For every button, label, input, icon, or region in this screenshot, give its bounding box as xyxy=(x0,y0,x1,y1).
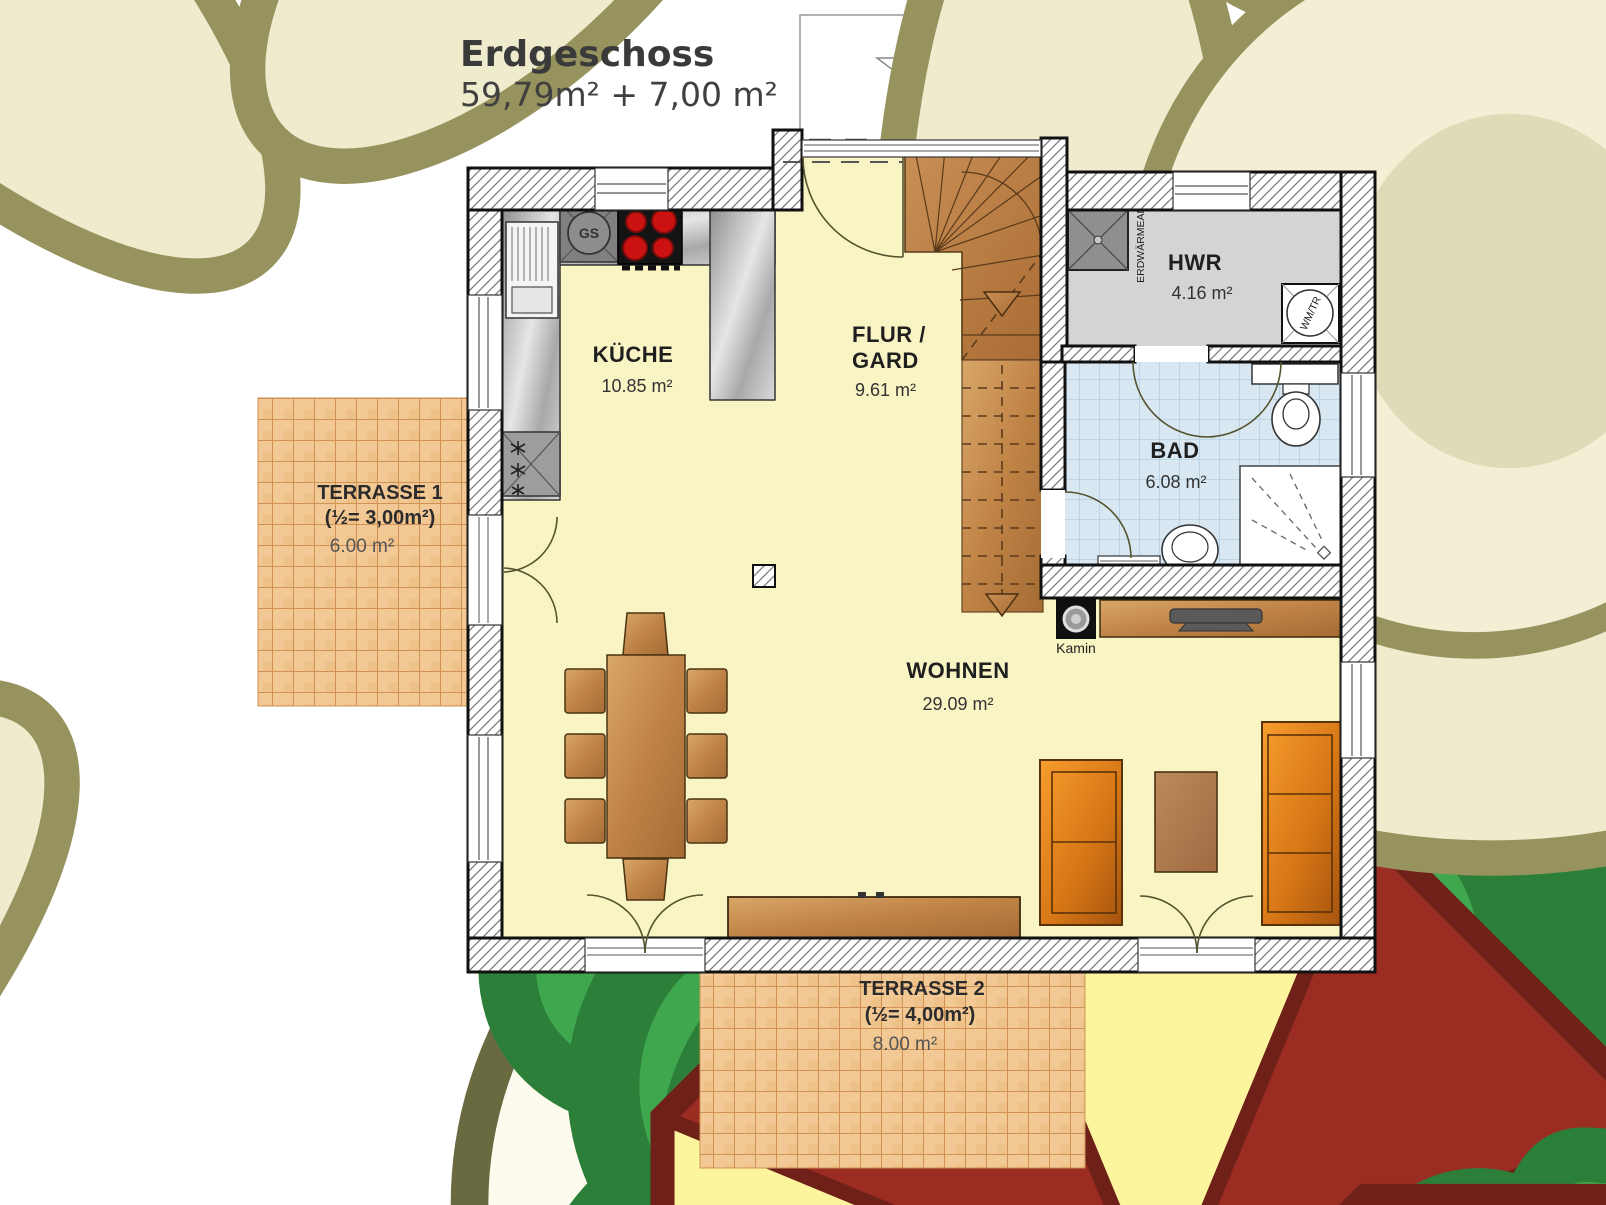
hwr-label: HWR xyxy=(1168,250,1222,275)
wall-entry-jog xyxy=(773,130,802,210)
dining-chair xyxy=(687,799,727,843)
window xyxy=(1341,662,1375,758)
terrace-1-halfnote: (½= 3,00m²) xyxy=(325,507,436,529)
bad-label: BAD xyxy=(1150,438,1199,463)
dishwasher-label: GS xyxy=(579,225,599,241)
page-title: Erdgeschoss xyxy=(460,34,714,75)
bad-area: 6.08 m² xyxy=(1145,472,1206,492)
tv-icon xyxy=(1170,609,1262,623)
wall-hwr-bad-a xyxy=(1062,346,1135,362)
dining-chair xyxy=(565,799,605,843)
burner-icon xyxy=(626,212,646,232)
wohnen-area: 29.09 m² xyxy=(922,694,993,714)
wall-bad-wohnen xyxy=(1041,565,1341,598)
sideboard xyxy=(728,892,1020,938)
geothermal-unit xyxy=(1068,210,1128,270)
hwr-area: 4.16 m² xyxy=(1171,283,1232,303)
terrace-1-area: 6.00 m² xyxy=(330,536,394,557)
burner-icon xyxy=(652,209,676,233)
terrace-2-halfnote: (½= 4,00m²) xyxy=(865,1004,976,1026)
dining-chair xyxy=(623,859,668,900)
column xyxy=(753,565,775,587)
wall-stair-hwr xyxy=(1041,138,1067,362)
terrace-1-name: TERRASSE 1 xyxy=(317,482,443,504)
shower xyxy=(1240,466,1341,566)
terrace-2-name: TERRASSE 2 xyxy=(859,978,985,1000)
wohnen-label: WOHNEN xyxy=(906,658,1009,683)
window xyxy=(1341,373,1375,477)
floorplan-page: TERRASSE 1 (½= 3,00m²) 6.00 m² TERRASSE … xyxy=(0,0,1606,1205)
floorplan-svg: TERRASSE 1 (½= 3,00m²) 6.00 m² TERRASSE … xyxy=(0,0,1606,1205)
sofa-two-seat xyxy=(1040,760,1122,925)
wall-hwr-bad-b xyxy=(1208,346,1341,362)
kueche-label: KÜCHE xyxy=(593,342,674,367)
wall-right xyxy=(1341,172,1375,972)
flur-area: 9.61 m² xyxy=(855,380,916,400)
title-block: Erdgeschoss 59,79m² + 7,00 m² xyxy=(460,34,778,114)
dishwasher-unit: GS xyxy=(560,204,618,262)
counter-right-column xyxy=(710,208,775,400)
dining-table xyxy=(607,655,685,858)
window xyxy=(468,295,502,410)
fridge xyxy=(506,222,558,318)
tv-sideboard xyxy=(1100,600,1341,637)
window xyxy=(1173,172,1250,210)
flur-label-2: GARD xyxy=(852,348,919,373)
page-area-summary: 59,79m² + 7,00 m² xyxy=(460,75,778,114)
coffee-table xyxy=(1155,772,1217,872)
dining-chair xyxy=(687,734,727,778)
dining-chair xyxy=(565,734,605,778)
fireplace xyxy=(1056,599,1096,639)
terrace-2-area: 8.00 m² xyxy=(873,1034,937,1055)
flur-label-1: FLUR / xyxy=(852,322,926,347)
dining-chair xyxy=(623,613,668,655)
washer-dryer-unit: WM/TR xyxy=(1282,284,1339,343)
sofa-three-seat xyxy=(1262,722,1341,925)
fireplace-label: Kamin xyxy=(1056,640,1096,656)
hob xyxy=(618,204,682,268)
kueche-area: 10.85 m² xyxy=(601,376,672,396)
window xyxy=(468,735,502,862)
burner-icon xyxy=(623,236,647,260)
burner-icon xyxy=(653,238,673,258)
window xyxy=(595,168,668,210)
dining-chair xyxy=(565,669,605,713)
wall-bad-west-a xyxy=(1041,362,1065,490)
sink-unit xyxy=(502,432,560,496)
dining-chair xyxy=(687,669,727,713)
